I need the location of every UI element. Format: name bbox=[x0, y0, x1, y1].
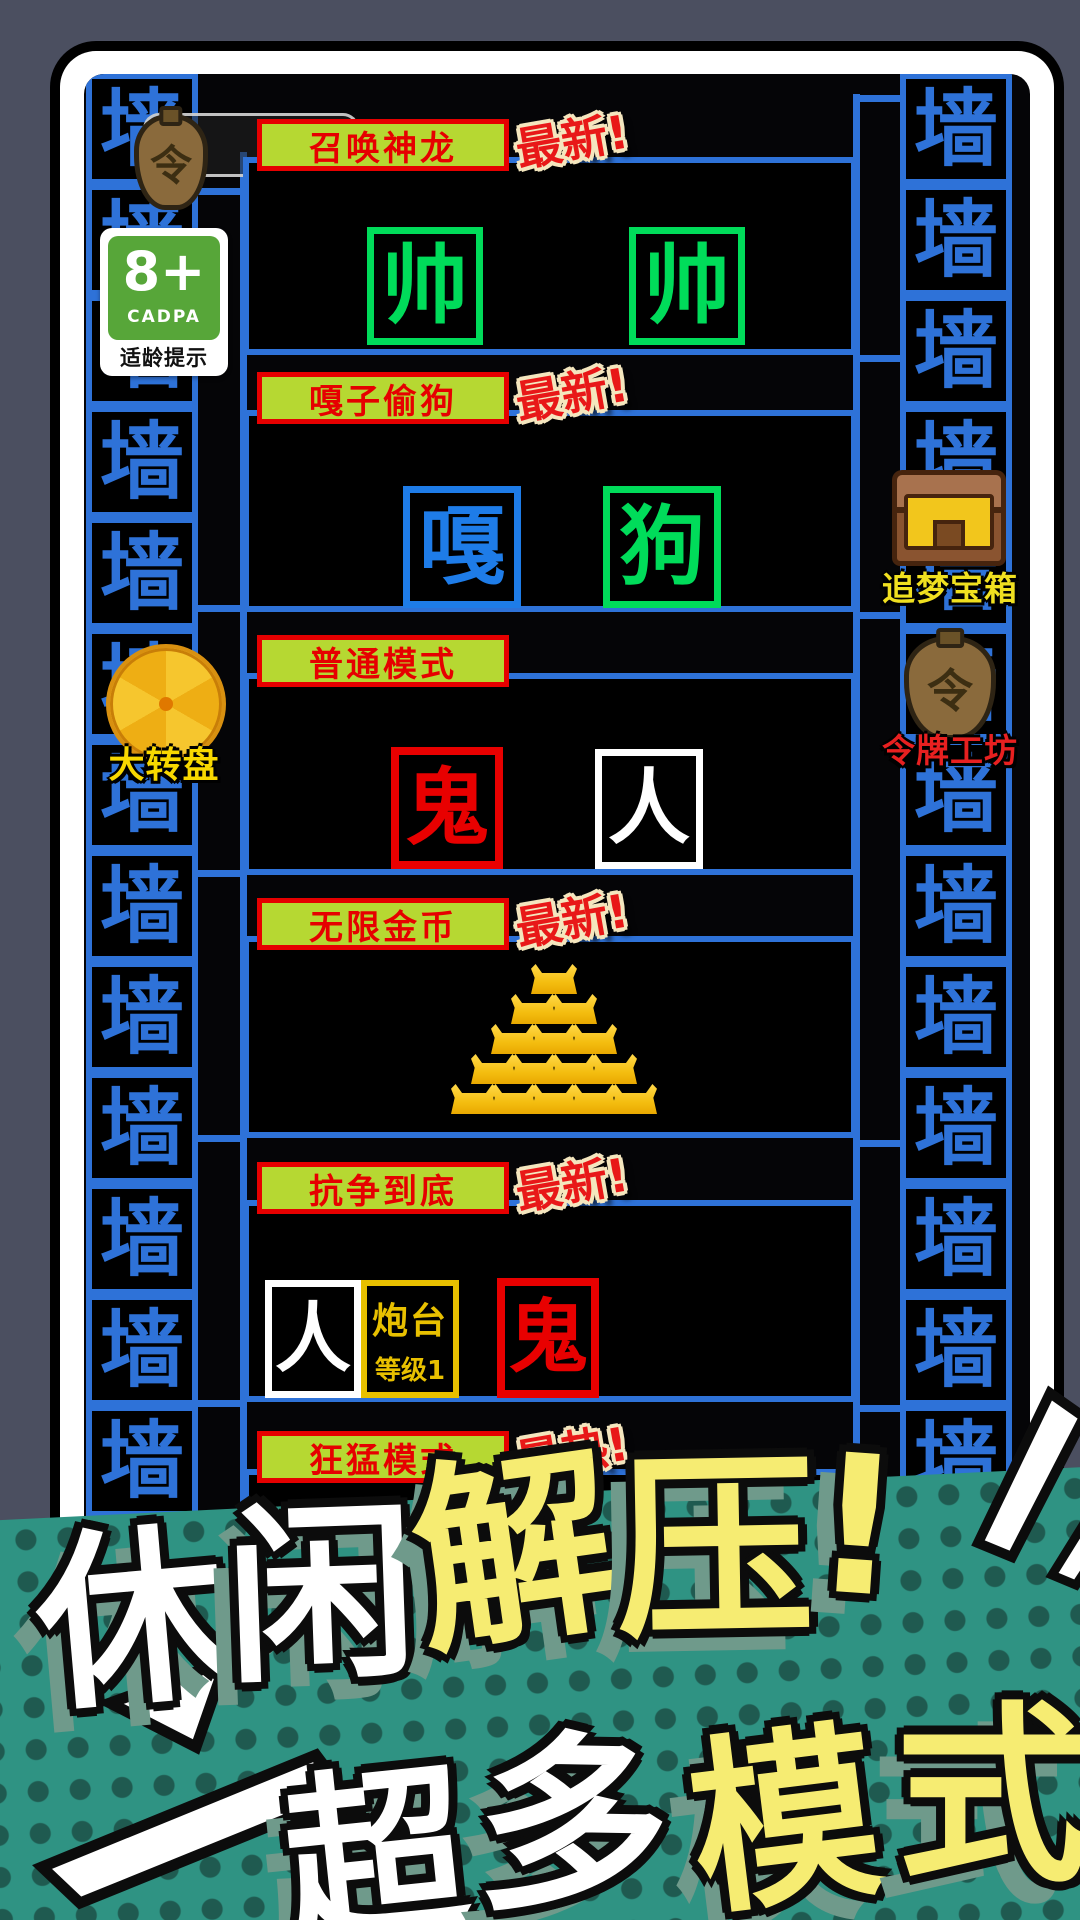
maze-stub bbox=[194, 870, 244, 877]
wall-tile: 墙 bbox=[86, 1072, 198, 1184]
wall-tile: 墙 bbox=[900, 184, 1012, 296]
mode-panel-summon-dragon[interactable]: 召唤神龙 最新! 帅 帅 bbox=[243, 157, 857, 355]
new-badge: 最新! bbox=[510, 96, 633, 181]
mode-panel-normal[interactable]: 普通模式 鬼 人 bbox=[243, 673, 857, 875]
ingot-row bbox=[389, 964, 719, 994]
gold-ingot bbox=[511, 1054, 557, 1084]
ingot-row bbox=[389, 1084, 719, 1114]
ingot-row bbox=[389, 994, 719, 1024]
maze-stub bbox=[853, 95, 905, 102]
wall-tile: 墙 bbox=[86, 961, 198, 1073]
new-badge: 最新! bbox=[510, 875, 633, 960]
banner-char: 多 bbox=[476, 1730, 671, 1920]
mode-panel-infinite-gold[interactable]: 无限金币 最新! bbox=[243, 936, 857, 1138]
gold-ingot bbox=[591, 1054, 637, 1084]
age-rating-caption: 适龄提示 bbox=[100, 342, 228, 372]
wall-tile: 墙 bbox=[86, 1183, 198, 1295]
game-tile: 人 bbox=[595, 749, 703, 869]
mode-panel-gazi-steals-dog[interactable]: 嘎子偷狗 最新! 嘎 狗 bbox=[243, 410, 857, 612]
gold-ingot-pyramid bbox=[389, 964, 719, 1114]
maze-stub bbox=[853, 355, 905, 362]
wall-tile: 墙 bbox=[86, 1294, 198, 1406]
maze-stub bbox=[853, 1405, 905, 1412]
banner-char: 解 bbox=[401, 1438, 629, 1666]
banner-char: 式 bbox=[896, 1702, 1080, 1894]
gold-ingot bbox=[611, 1084, 657, 1114]
token-glyph: 令 bbox=[150, 132, 192, 193]
wall-tile: 墙 bbox=[900, 850, 1012, 962]
maze-stub bbox=[853, 1140, 905, 1147]
gold-ingot bbox=[571, 1024, 617, 1054]
gold-ingot bbox=[531, 964, 577, 994]
wall-tile: 墙 bbox=[900, 295, 1012, 407]
wall-tile: 墙 bbox=[900, 1072, 1012, 1184]
token-icon: 令 bbox=[134, 114, 208, 210]
gold-ingot bbox=[491, 1084, 537, 1114]
age-rating-org: CADPA bbox=[108, 308, 220, 326]
ingot-row bbox=[389, 1054, 719, 1084]
gold-ingot bbox=[491, 1024, 537, 1054]
banner-char: 休 bbox=[29, 1518, 236, 1736]
panel-title: 召唤神龙 bbox=[257, 119, 509, 171]
game-tile: 鬼 bbox=[391, 747, 503, 869]
gold-ingot bbox=[551, 1054, 597, 1084]
treasure-chest-icon[interactable] bbox=[892, 470, 1006, 568]
maze-stub bbox=[194, 605, 244, 612]
right-wall-column: 墙墙墙墙墙墙墙墙墙墙墙墙墙 bbox=[900, 74, 1012, 1517]
banner-char: 压 bbox=[615, 1449, 816, 1654]
game-tile: 嘎 bbox=[403, 486, 521, 608]
banner-char: 闲 bbox=[223, 1498, 420, 1707]
wall-tile: 墙 bbox=[900, 961, 1012, 1073]
age-rating-green-box: 8+ CADPA bbox=[108, 236, 220, 340]
wall-tile: 墙 bbox=[86, 406, 198, 518]
gold-ingot bbox=[471, 1054, 517, 1084]
age-rating-badge: 8+ CADPA 适龄提示 bbox=[100, 228, 228, 376]
banner-char: ! bbox=[807, 1429, 908, 1637]
game-tile: 鬼 bbox=[497, 1278, 599, 1398]
turret-name: 炮台 bbox=[372, 1292, 448, 1344]
gold-ingot bbox=[511, 994, 557, 1024]
new-badge: 最新! bbox=[510, 349, 633, 434]
turret-tile: 炮台 等级1 bbox=[361, 1280, 459, 1398]
wall-tile: 墙 bbox=[900, 1183, 1012, 1295]
panel-title: 嘎子偷狗 bbox=[257, 372, 509, 424]
app-store-screenshot: 墙墙墙墙墙墙墙墙墙墙墙墙墙 墙墙墙墙墙墙墙墙墙墙墙墙墙 29 令 8+ CADP… bbox=[0, 0, 1080, 1920]
gold-ingot bbox=[451, 1084, 497, 1114]
wall-tile: 墙 bbox=[86, 850, 198, 962]
panel-title: 抗争到底 bbox=[257, 1162, 509, 1214]
ingot-row bbox=[389, 1024, 719, 1054]
workshop-token-glyph: 令 bbox=[927, 655, 973, 721]
gold-ingot bbox=[551, 994, 597, 1024]
gold-ingot bbox=[531, 1024, 577, 1054]
wall-tile: 墙 bbox=[900, 74, 1012, 185]
token-workshop-label: 令牌工坊 bbox=[870, 724, 1030, 772]
maze-stub bbox=[194, 1400, 244, 1407]
gold-ingot bbox=[531, 1084, 577, 1114]
panel-title: 普通模式 bbox=[257, 635, 509, 687]
game-tile: 狗 bbox=[603, 486, 721, 608]
game-tile: 人 bbox=[265, 1280, 361, 1398]
chest-lock bbox=[933, 520, 965, 550]
banner-headline-line2: 超 多 模 式 bbox=[278, 1685, 1080, 1919]
maze-stub bbox=[194, 1135, 244, 1142]
game-tile: 帅 bbox=[367, 227, 483, 345]
panel-title: 无限金币 bbox=[257, 898, 509, 950]
prize-wheel-label: 大转盘 bbox=[84, 736, 254, 788]
banner-char: 模 bbox=[680, 1718, 890, 1920]
game-tile: 帅 bbox=[629, 227, 745, 345]
treasure-chest-label: 追梦宝箱 bbox=[870, 562, 1030, 610]
maze-stub bbox=[853, 612, 905, 619]
gold-ingot bbox=[571, 1084, 617, 1114]
speed-marks-top-right bbox=[950, 1385, 1080, 1600]
age-rating-value: 8+ bbox=[108, 236, 220, 308]
turret-level: 等级1 bbox=[375, 1350, 445, 1387]
banner-char: 超 bbox=[275, 1757, 476, 1920]
wall-tile: 墙 bbox=[86, 517, 198, 629]
new-badge: 最新! bbox=[510, 1139, 633, 1224]
mode-panel-fight-to-end[interactable]: 抗争到底 最新! 人 炮台 等级1 鬼 bbox=[243, 1200, 857, 1402]
